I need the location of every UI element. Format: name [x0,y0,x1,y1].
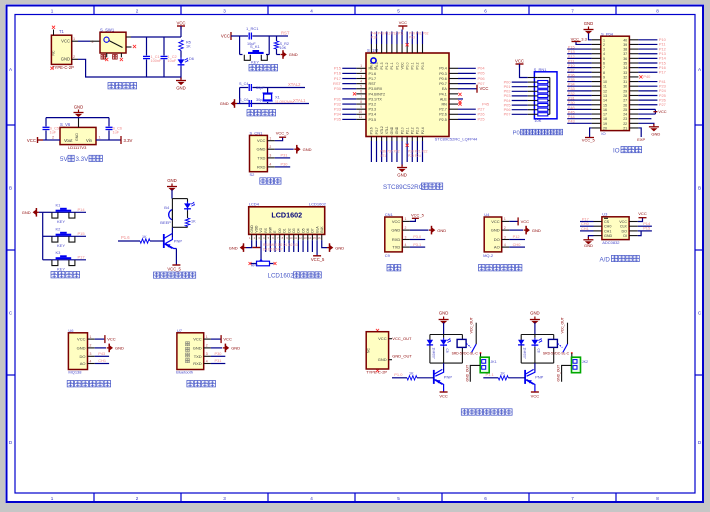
svg-text:100nF: 100nF [151,59,162,63]
svg-text:15: 15 [603,103,607,107]
svg-text:P4.4: P4.4 [370,62,374,69]
svg-text:18: 18 [603,117,607,121]
svg-text:LD1117V3: LD1117V3 [68,145,87,150]
svg-text:3: 3 [223,9,226,14]
svg-text:40: 40 [623,38,627,42]
svg-text:P17: P17 [659,70,666,75]
svg-text:VDD: VDD [255,225,259,233]
svg-text:P3.3: P3.3 [369,108,377,112]
svg-text:P4.3: P4.3 [375,62,379,69]
svg-text:P4.1: P4.1 [439,92,447,96]
svg-text:4: 4 [269,163,271,167]
svg-text:P3.2: P3.2 [369,102,377,106]
svg-text:RST: RST [369,82,377,86]
svg-text:11: 11 [294,236,297,240]
svg-text:14: 14 [308,236,312,240]
svg-text:31: 31 [623,80,627,84]
svg-text:GND: GND [584,243,593,248]
svg-text:GND: GND [75,133,79,141]
svg-text:IO: IO [601,131,605,136]
svg-text:P31: P31 [281,153,288,158]
svg-text:36: 36 [623,57,627,61]
svg-text:RXD: RXD [193,361,202,366]
svg-text:PNP: PNP [174,239,183,244]
svg-text:GND: GND [391,228,400,233]
svg-text:P30: P30 [281,162,289,167]
svg-text:B4: B4 [164,205,170,210]
svg-text:VCC_OUT: VCC_OUT [469,317,473,333]
svg-text:38: 38 [623,48,627,52]
svg-text:GND: GND [651,132,660,137]
svg-text:VCC: VCC [107,337,116,342]
svg-text:6: 6 [484,496,487,501]
svg-text:2: 2 [504,226,506,230]
svg-text:VCC_5: VCC_5 [582,138,596,143]
svg-text:STC89C52RC: STC89C52RC [383,184,424,191]
svg-text:EA: EA [442,87,447,91]
svg-text:T1: T1 [59,29,65,34]
svg-text:3: 3 [206,352,208,356]
svg-text:RW: RW [269,226,273,232]
svg-text:13: 13 [303,236,307,240]
svg-text:VCC: VCC [491,219,500,224]
svg-text:2: 2 [206,344,208,348]
svg-text:3: 3 [360,74,362,78]
svg-text:AO: AO [80,361,86,366]
svg-text:GND: GND [74,105,84,110]
svg-text:VCC_5: VCC_5 [276,131,290,136]
svg-text:4: 4 [360,79,362,83]
svg-text:1: 1 [90,335,92,339]
svg-text:32: 32 [623,75,627,79]
svg-text:2: 2 [52,135,54,139]
svg-text:2: 2 [269,145,271,149]
svg-text:GND: GND [303,147,312,152]
svg-text:VCC: VCC [658,109,666,114]
svg-text:RST: RST [281,31,290,36]
svg-text:2: 2 [360,69,362,73]
svg-text:GND: GND [176,86,186,91]
svg-text:TXD: TXD [194,354,202,359]
svg-text:27: 27 [623,99,627,103]
svg-text:D3: D3 [292,228,296,232]
svg-text:P2.3: P2.3 [416,127,420,134]
svg-text:P30: P30 [215,351,223,356]
svg-text:28: 28 [623,94,627,98]
svg-text:3: 3 [405,235,407,239]
svg-text:P4.6/INT2: P4.6/INT2 [369,92,386,96]
svg-text:1K: 1K [186,44,191,48]
svg-text:D1: D1 [283,228,287,232]
svg-text:PNP: PNP [535,374,544,379]
svg-text:SRD-5VDC-SL-C: SRD-5VDC-SL-C [452,352,479,356]
svg-text:P25: P25 [478,117,486,122]
svg-text:10: 10 [603,80,607,84]
svg-text:P3.0/RX: P3.0/RX [369,87,383,91]
svg-text:RXD: RXD [392,237,401,242]
svg-text:KEY: KEY [57,266,65,271]
svg-text:P2.4: P2.4 [421,127,425,134]
svg-text:33: 33 [623,71,627,75]
svg-text:P3.0: P3.0 [413,234,422,239]
svg-text:1N4007: 1N4007 [523,348,527,359]
svg-text:P2.2: P2.2 [411,127,415,134]
svg-text:GND: GND [530,311,540,316]
svg-text:TXD: TXD [257,155,265,160]
svg-text:16: 16 [603,108,607,112]
svg-text:CH1: CH1 [604,229,611,233]
svg-text:P0.0: P0.0 [405,62,409,69]
svg-text:X1: X1 [275,95,281,100]
svg-text:VCC: VCC [378,336,387,341]
svg-text:LCD1602: LCD1602 [309,202,327,207]
svg-text:P3.4: P3.4 [369,113,377,117]
svg-text:39: 39 [623,43,627,47]
svg-text:P3.6: P3.6 [370,127,374,134]
svg-text:1: 1 [206,335,208,339]
svg-text:11.0592MHz: 11.0592MHz [275,100,294,104]
svg-text:CLK: CLK [620,225,628,229]
svg-text:10K: 10K [280,46,287,50]
svg-text:1: 1 [603,38,605,42]
svg-text:P12: P12 [513,234,520,239]
svg-text:P2.7: P2.7 [439,108,447,112]
svg-text:C8: C8 [445,349,449,353]
svg-text:C9: C9 [385,253,391,258]
svg-text:GND: GND [167,178,177,183]
svg-text:VCC: VCC [638,211,647,216]
svg-text:2: 2 [90,344,92,348]
svg-text:1uF: 1uF [50,130,57,134]
svg-text:Vin: Vin [86,138,93,143]
svg-text:NC: NC [367,348,371,353]
svg-text:GND: GND [378,357,387,362]
svg-text:SRD-5VDC-SL-C: SRD-5VDC-SL-C [543,352,570,356]
svg-text:P1.2: P1.2 [385,62,389,69]
svg-text:17: 17 [603,113,607,117]
svg-text:GND: GND [395,126,399,134]
svg-text:P36 P37 XT2: P36 P37 XT2 [380,149,400,153]
svg-text:IO: IO [613,147,620,154]
svg-text:VCC_5: VCC_5 [311,257,325,262]
svg-text:DO: DO [80,354,86,359]
svg-text:K1: K1 [56,203,62,208]
svg-text:11: 11 [603,85,607,89]
svg-text:3: 3 [603,48,605,52]
svg-text:1: 1 [98,135,100,139]
svg-text:P35: P35 [334,117,342,122]
svg-text:VCC: VCC [400,62,404,70]
svg-text:VCC: VCC [27,138,36,143]
svg-text:1K: 1K [142,235,147,239]
svg-text:3.3V: 3.3V [76,156,90,163]
svg-text:20: 20 [603,126,607,130]
svg-text:D7: D7 [311,228,315,232]
svg-text:CH1: CH1 [98,358,106,363]
svg-text:P03: P03 [409,36,415,40]
svg-text:D4 D5 D6 D7: D4 D5 D6 D7 [263,248,283,252]
svg-text:S_C4: S_C4 [239,82,249,86]
svg-text:VCC: VCC [221,33,230,38]
svg-text:37: 37 [623,52,627,56]
svg-text:5V: 5V [60,156,68,163]
svg-text:23: 23 [623,117,627,121]
svg-text:VCC: VCC [531,394,540,399]
svg-text:GND: GND [61,57,70,62]
svg-text:9: 9 [360,105,362,109]
svg-text:7: 7 [603,66,605,70]
svg-text:GND: GND [397,173,407,178]
svg-text:P0.7: P0.7 [439,82,447,86]
svg-text:13: 13 [603,94,607,98]
svg-text:K3: K3 [56,250,62,255]
svg-text:GND: GND [532,228,541,233]
svg-text:10: 10 [289,236,293,240]
svg-text:P0: P0 [513,131,520,137]
svg-text:10uF: 10uF [168,59,177,63]
svg-text:RN: RN [441,102,447,106]
svg-text:6: 6 [484,9,487,14]
svg-text:6: 6 [360,90,362,94]
svg-text:VCC: VCC [61,39,70,44]
svg-text:D4: D4 [297,228,301,232]
svg-text:GND: GND [77,345,86,350]
svg-text:P1.1: P1.1 [390,62,394,69]
svg-text:XTL2: XTL2 [380,126,384,134]
svg-text:D6: D6 [306,228,310,232]
svg-text:24: 24 [623,113,627,117]
svg-text:2: 2 [92,40,94,44]
svg-text:VCC: VCC [77,337,86,342]
svg-text:VCC: VCC [176,20,185,25]
svg-text:7: 7 [360,95,362,99]
svg-text:35: 35 [623,62,627,66]
svg-text:S2: S2 [250,172,256,177]
svg-text:P1.3: P1.3 [380,62,384,69]
svg-text:KEY: KEY [57,219,65,224]
svg-text:14: 14 [603,99,607,103]
svg-text:11: 11 [359,115,363,119]
svg-text:C8: C8 [537,349,541,353]
svg-text:GND_OUT: GND_OUT [392,354,412,359]
svg-text:7: 7 [571,9,574,14]
svg-text:P2.0: P2.0 [400,127,404,134]
svg-text:BLK: BLK [320,226,324,233]
svg-text:VCC_OUT: VCC_OUT [561,317,565,333]
svg-text:VCC: VCC [399,20,407,25]
svg-text:29: 29 [623,89,627,93]
svg-text:BEEP: BEEP [160,220,171,225]
svg-text:1: 1 [269,137,271,141]
svg-text:ALE: ALE [440,97,448,101]
svg-text:P3.1: P3.1 [413,242,421,247]
svg-text:1: 1 [73,37,75,41]
svg-text:MQ-2: MQ-2 [483,253,494,258]
svg-text:GND: GND [584,21,594,26]
svg-text:D0: D0 [278,228,282,232]
svg-text:A/D: A/D [600,256,611,263]
svg-text:U7: U7 [177,328,183,333]
svg-text:STC89C52RC_LQFP44: STC89C52RC_LQFP44 [435,137,478,142]
svg-text:4: 4 [603,52,605,56]
svg-text:P0.2: P0.2 [416,62,420,69]
svg-text:P0.3: P0.3 [439,72,447,76]
svg-text:8: 8 [360,100,362,104]
svg-text:VCC_5: VCC_5 [167,267,181,272]
svg-text:3.3V: 3.3V [124,138,133,143]
svg-text:RXD: RXD [257,164,266,169]
svg-text:XTL1: XTL1 [385,126,389,134]
svg-text:15: 15 [313,236,317,240]
svg-text:GND: GND [229,245,238,250]
svg-text:P23 P24: P23 P24 [408,154,421,158]
svg-text:MQ138: MQ138 [68,369,82,374]
svg-text:4: 4 [206,359,208,363]
svg-text:KEY: KEY [57,243,65,248]
svg-text:2: 2 [136,9,139,14]
svg-text:1K: 1K [500,372,505,376]
svg-text:10: 10 [358,110,362,114]
svg-text:P14: P14 [78,207,86,212]
svg-text:8: 8 [656,9,659,14]
svg-text:PNP: PNP [444,374,453,379]
svg-text:1uF: 1uF [113,130,120,134]
svg-text:P43: P43 [568,119,575,124]
svg-text:NC: NC [52,50,56,55]
svg-text:VCC_5: VCC_5 [411,212,425,217]
svg-text:3: 3 [90,352,92,356]
svg-text:GND: GND [437,228,446,233]
svg-text:GND_OUT: GND_OUT [557,365,561,382]
svg-text:P30: P30 [334,86,342,91]
svg-text:VO: VO [259,227,263,232]
svg-text:6: 6 [603,62,605,66]
svg-text:GND: GND [491,228,500,233]
svg-text:GND: GND [115,346,124,351]
svg-text:7: 7 [571,496,574,501]
svg-text:5: 5 [397,9,400,14]
svg-text:1: 1 [360,64,362,68]
svg-text:1: 1 [405,217,407,221]
svg-text:P1.0: P1.0 [394,372,403,377]
svg-text:TYPE-C-2P: TYPE-C-2P [366,370,387,375]
svg-text:P31: P31 [215,358,222,363]
svg-text:P2.6: P2.6 [439,113,447,117]
svg-text:3: 3 [269,154,271,158]
svg-text:GND_OUT: GND_OUT [465,365,469,382]
svg-text:25: 25 [623,108,627,112]
svg-text:U3: U3 [602,212,608,217]
svg-text:VCC: VCC [392,219,401,224]
svg-text:K2: K2 [56,227,62,232]
svg-text:LCD1602: LCD1602 [271,211,302,220]
svg-text:DO: DO [621,229,627,233]
svg-text:VCC: VCC [439,394,448,399]
svg-text:5: 5 [397,496,400,501]
svg-text:VCC: VCC [223,337,232,342]
svg-text:VCC_OUT: VCC_OUT [392,336,412,341]
svg-text:GND: GND [22,210,31,215]
svg-text:B: B [698,186,701,191]
svg-text:4: 4 [504,243,506,247]
svg-text:P1.7: P1.7 [369,77,377,81]
svg-text:22: 22 [623,122,627,126]
svg-text:8: 8 [603,71,605,75]
svg-text:12: 12 [299,236,303,240]
svg-text:S_K1: S_K1 [250,44,261,49]
svg-text:VCC: VCC [480,86,489,91]
svg-text:CH0: CH0 [604,225,611,229]
svg-text:GND: GND [220,101,229,106]
svg-text:1: 1 [504,217,506,221]
svg-text:GND: GND [604,234,613,238]
svg-text:GND: GND [231,346,240,351]
svg-text:GND: GND [193,345,202,350]
svg-text:2: 2 [136,496,139,501]
svg-text:U6: U6 [68,328,74,333]
svg-text:12: 12 [603,89,607,93]
svg-text:Bluetooth: Bluetooth [176,369,193,374]
svg-text:1: 1 [51,496,54,501]
svg-text:LCD4: LCD4 [249,202,260,207]
svg-text:P0.4: P0.4 [439,67,447,71]
svg-text:VCC: VCC [515,58,524,63]
svg-text:XTAL2: XTAL2 [288,82,301,87]
svg-text:D2: D2 [287,228,291,232]
svg-text:1: 1 [51,9,54,14]
svg-text:10K: 10K [534,118,541,123]
svg-text:GND: GND [439,311,449,316]
svg-text:TXD: TXD [392,245,400,250]
svg-text:P20 P21 P22: P20 P21 P22 [408,149,428,153]
svg-text:4: 4 [310,9,313,14]
svg-text:P1.1: P1.1 [486,372,495,377]
svg-text:S_C6: S_C6 [239,98,249,102]
svg-text:P07: P07 [478,81,486,86]
svg-text:DO: DO [494,237,500,242]
svg-text:D5: D5 [301,228,305,232]
svg-text:GND: GND [250,225,254,233]
svg-text:TYPE-C-2P: TYPE-C-2P [52,65,74,70]
svg-text:1N4007: 1N4007 [431,348,435,359]
svg-text:P07: P07 [504,112,511,117]
svg-text:RP1: RP1 [251,263,258,267]
svg-text:P17: P17 [78,254,86,259]
svg-text:KEY: KEY [251,60,259,65]
svg-text:2: 2 [603,43,605,47]
svg-text:P1.0: P1.0 [395,62,399,69]
svg-text:P1.6: P1.6 [121,235,130,240]
svg-text:16: 16 [317,236,321,240]
svg-text:30pF: 30pF [256,86,265,90]
svg-text:XTAL1: XTAL1 [293,98,306,103]
svg-text:4: 4 [405,243,407,247]
svg-text:JK1: JK1 [491,360,497,364]
svg-text:4: 4 [310,496,313,501]
svg-text:34: 34 [623,66,627,70]
svg-text:P3.7: P3.7 [375,127,379,134]
svg-text:P15: P15 [78,231,86,236]
svg-text:GND: GND [390,126,394,134]
svg-text:P3.1/TX: P3.1/TX [369,97,383,101]
svg-text:21: 21 [623,126,627,130]
svg-text:LCD1602: LCD1602 [268,273,295,280]
svg-text:P43: P43 [98,351,105,356]
svg-text:VCC: VCC [521,219,530,224]
svg-text:P1.6: P1.6 [369,72,377,76]
svg-text:P15: P15 [643,226,650,231]
svg-text:XT1: XT1 [380,154,386,158]
